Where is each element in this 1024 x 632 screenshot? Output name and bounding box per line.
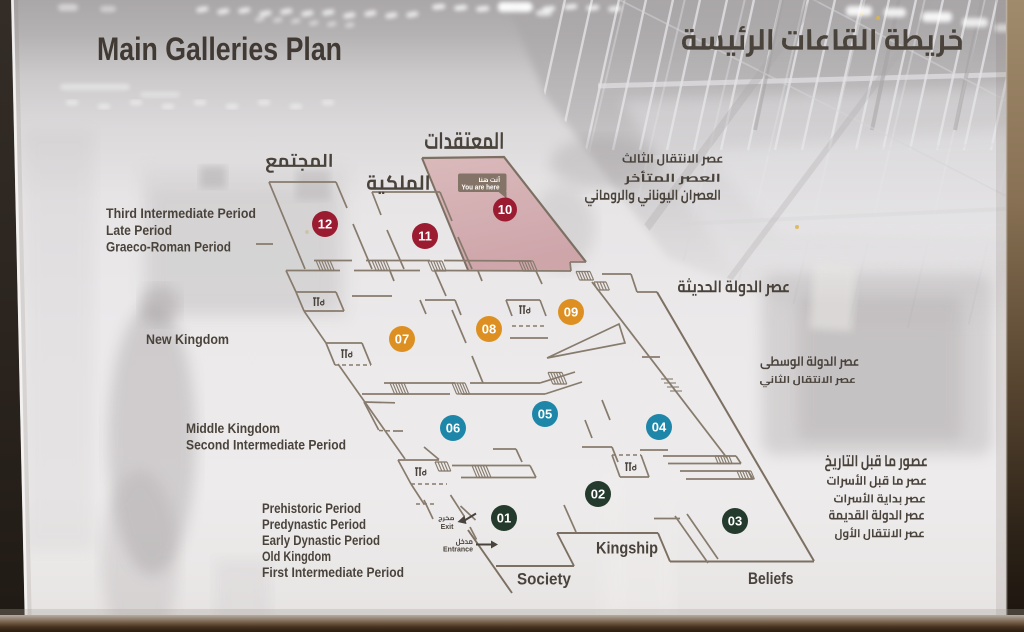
- svg-text:Main Galleries Plan: Main Galleries Plan: [97, 31, 342, 67]
- svg-text:04: 04: [652, 420, 667, 435]
- svg-text:Kingship: Kingship: [596, 539, 658, 558]
- svg-text:06: 06: [446, 421, 460, 436]
- svg-text:Entrance: Entrance: [443, 547, 473, 554]
- svg-text:Middle Kingdom: Middle Kingdom: [186, 421, 280, 436]
- svg-text:Exit: Exit: [441, 524, 455, 531]
- svg-text:12: 12: [318, 217, 332, 232]
- svg-text:Graeco-Roman Period: Graeco-Roman Period: [106, 240, 231, 255]
- svg-text:02: 02: [591, 487, 605, 502]
- svg-text:Beliefs: Beliefs: [748, 569, 794, 588]
- svg-text:01: 01: [497, 511, 511, 526]
- svg-text:09: 09: [564, 305, 578, 320]
- svg-text:First Intermediate Period: First Intermediate Period: [262, 565, 404, 580]
- svg-text:03: 03: [728, 514, 742, 529]
- svg-text:05: 05: [538, 407, 552, 422]
- svg-text:Predynastic Period: Predynastic Period: [262, 517, 366, 532]
- svg-text:Old Kingdom: Old Kingdom: [262, 549, 331, 564]
- svg-text:Second Intermediate Period: Second Intermediate Period: [186, 438, 346, 453]
- svg-text:Early Dynastic Period: Early Dynastic Period: [262, 533, 380, 548]
- svg-text:Late Period: Late Period: [106, 223, 172, 238]
- svg-text:Prehistoric Period: Prehistoric Period: [262, 501, 361, 516]
- svg-text:Society: Society: [517, 570, 571, 589]
- svg-text:11: 11: [418, 229, 432, 244]
- svg-text:New Kingdom: New Kingdom: [146, 332, 229, 347]
- svg-text:07: 07: [395, 332, 409, 347]
- svg-text:10: 10: [498, 202, 512, 217]
- svg-text:Third Intermediate Period: Third Intermediate Period: [106, 206, 256, 221]
- svg-text:You are here: You are here: [462, 183, 500, 192]
- svg-text:08: 08: [482, 322, 496, 337]
